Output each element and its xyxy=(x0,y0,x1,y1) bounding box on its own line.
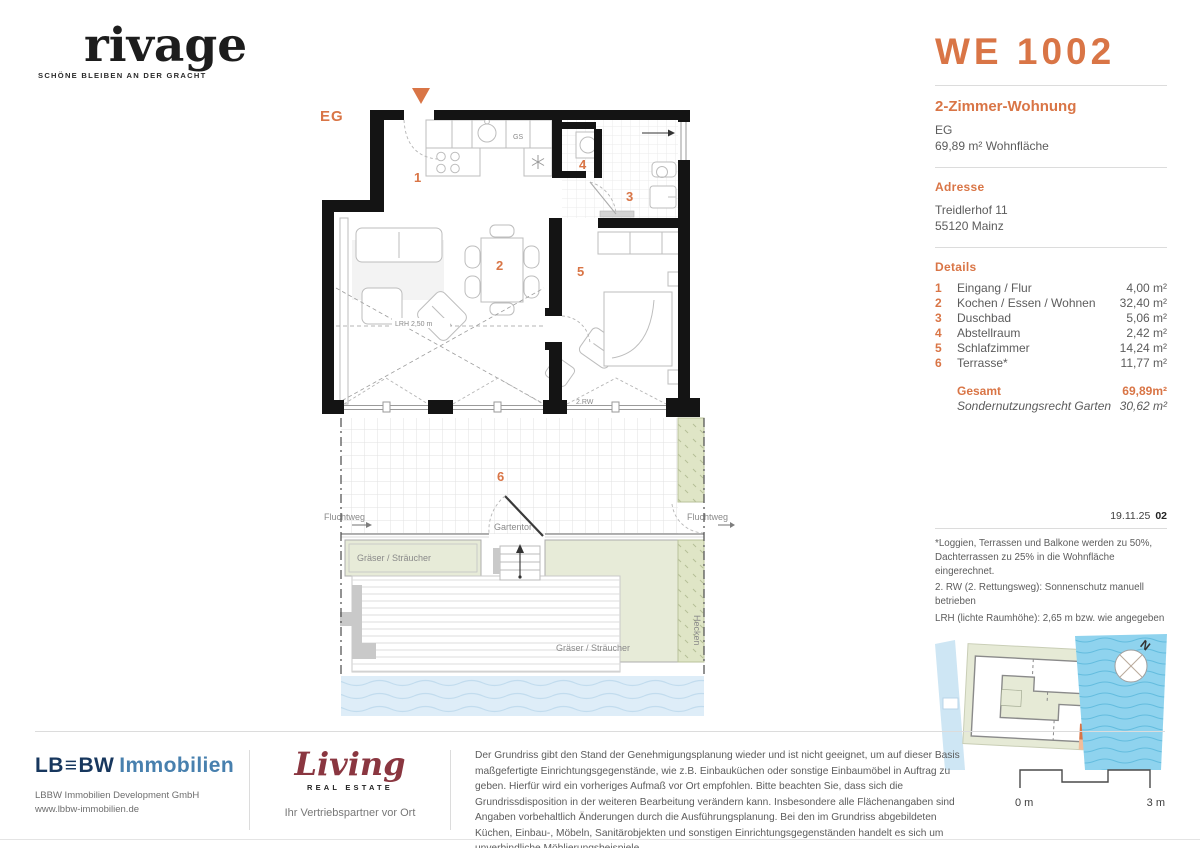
revision: 02 xyxy=(1155,510,1167,522)
row-name: Duschbad xyxy=(957,312,1126,326)
shrubs-right-label: Gräser / Sträucher xyxy=(556,643,630,653)
wardrobe xyxy=(598,232,684,254)
footnote: LRH (lichte Raumhöhe): 2,65 m bzw. wie a… xyxy=(935,612,1167,626)
second-escape-label: 2.RW xyxy=(576,399,594,406)
lbbw-website[interactable]: www.lbbw-immobilien.de xyxy=(35,803,225,817)
address-line2: 55120 Mainz xyxy=(935,218,1167,235)
living-tagline: Ihr Vertriebspartner vor Ort xyxy=(274,807,426,819)
living-subtitle: REAL ESTATE xyxy=(274,783,426,792)
divider xyxy=(935,247,1167,248)
footer-divider xyxy=(450,750,451,830)
unit-floor: EG xyxy=(935,122,1167,139)
row-area: 14,24 m² xyxy=(1120,342,1167,356)
row-name: Eingang / Flur xyxy=(957,282,1126,296)
bed xyxy=(604,292,672,366)
lrh-label: LRH 2,50 m xyxy=(395,321,433,328)
row-name: Kochen / Essen / Wohnen xyxy=(957,297,1120,311)
table-row: 5 Schlafzimmer 14,24 m² xyxy=(935,342,1167,356)
disclaimer-text: Der Grundriss gibt den Stand der Genehmi… xyxy=(475,748,973,848)
row-num: 6 xyxy=(935,357,957,371)
plan-date: 19.11.2502 xyxy=(935,510,1167,522)
row-area: 5,06 m² xyxy=(1126,312,1167,326)
divider xyxy=(935,85,1167,86)
lbbw-bw: BW xyxy=(78,754,114,777)
row-num: 1 xyxy=(935,282,957,296)
details-heading: Details xyxy=(935,260,1167,274)
total-label: Gesamt xyxy=(957,385,1122,399)
footnote: 2. RW (2. Rettungsweg): Sonnenschutz man… xyxy=(935,581,1167,609)
garden-gate-label: Gartentor xyxy=(494,522,532,532)
row-area: 4,00 m² xyxy=(1126,282,1167,296)
special-label: Sondernutzungsrecht Garten xyxy=(957,400,1120,414)
room-number-1: 1 xyxy=(414,170,421,185)
table-row: 2 Kochen / Essen / Wohnen 32,40 m² xyxy=(935,297,1167,311)
special-value: 30,62 m² xyxy=(1120,400,1167,414)
footer-divider xyxy=(249,750,250,830)
table-row: 4 Abstellraum 2,42 m² xyxy=(935,327,1167,341)
lbbw-lb: LB xyxy=(35,754,64,777)
room-number-2: 2 xyxy=(496,258,503,273)
escape-route-right-label: Fluchtweg xyxy=(687,512,728,522)
lbbw-logo: LB≡BWImmobilien xyxy=(35,754,225,778)
total-row: Gesamt 69,89m² xyxy=(935,385,1167,399)
scale-start: 0 m xyxy=(1015,797,1033,809)
scale-bar: 0 m 3 m xyxy=(1015,748,1165,809)
room-number-4: 4 xyxy=(579,157,587,172)
page-bottom-rule xyxy=(0,839,1200,840)
special-use-row: Sondernutzungsrecht Garten 30,62 m² xyxy=(935,400,1167,414)
hedge-label: Hecken xyxy=(692,615,702,646)
date: 19.11.25 xyxy=(1110,510,1150,522)
table-row: 6 Terrasse* 11,77 m² xyxy=(935,357,1167,371)
lbbw-block: LB≡BWImmobilien LBBW Immobilien Developm… xyxy=(35,748,225,818)
lbbw-immobilien: Immobilien xyxy=(119,754,234,777)
row-name: Terrasse* xyxy=(957,357,1121,371)
jetty xyxy=(943,698,958,709)
lbbw-company: LBBW Immobilien Development GmbH xyxy=(35,789,225,803)
table-row: 1 Eingang / Flur 4,00 m² xyxy=(935,282,1167,296)
row-area: 11,77 m² xyxy=(1121,357,1167,371)
divider xyxy=(935,528,1167,529)
terrace-and-garden xyxy=(340,418,704,716)
unit-area: 69,89 m² Wohnfläche xyxy=(935,138,1167,155)
row-area: 2,42 m² xyxy=(1126,327,1167,341)
kitchen-sink-icon xyxy=(478,124,496,142)
escape-route-left-label: Fluchtweg xyxy=(324,512,365,522)
footnote: *Loggien, Terrassen und Balkone werden z… xyxy=(935,537,1167,579)
row-num: 2 xyxy=(935,297,957,311)
footnotes: *Loggien, Terrassen und Balkone werden z… xyxy=(935,537,1167,626)
water-band xyxy=(341,676,704,716)
row-area: 32,40 m² xyxy=(1120,297,1167,311)
row-num: 3 xyxy=(935,312,957,326)
row-name: Schlafzimmer xyxy=(957,342,1120,356)
room-number-5: 5 xyxy=(577,264,584,279)
brand-tagline: SCHÖNE BLEIBEN AN DER GRACHT xyxy=(38,71,206,80)
dishwasher-label: GS xyxy=(513,134,523,141)
shrubs-left-label: Gräser / Sträucher xyxy=(357,553,431,563)
table-row: 3 Duschbad 5,06 m² xyxy=(935,312,1167,326)
row-num: 4 xyxy=(935,327,957,341)
details-table: 1 Eingang / Flur 4,00 m² 2 Kochen / Esse… xyxy=(935,282,1167,414)
living-block: Living REAL ESTATE Ihr Vertriebspartner … xyxy=(274,748,426,819)
plan-floor-label: EG xyxy=(320,108,344,125)
unit-type: 2-Zimmer-Wohnung xyxy=(935,98,1167,115)
lbbw-bars-icon: ≡ xyxy=(65,754,78,777)
floor-plan: LRH 2,50 m xyxy=(315,80,735,725)
address-heading: Adresse xyxy=(935,180,1167,194)
info-panel: WE 1002 2-Zimmer-Wohnung EG 69,89 m² Woh… xyxy=(935,32,1167,770)
footer: LB≡BWImmobilien LBBW Immobilien Developm… xyxy=(35,731,1165,848)
garden-stairs xyxy=(493,544,540,580)
address-line1: Treidlerhof 11 xyxy=(935,202,1167,219)
room-number-3: 3 xyxy=(626,189,633,204)
floorplan-page: rivage SCHÖNE BLEIBEN AN DER GRACHT xyxy=(0,0,1200,848)
row-num: 5 xyxy=(935,342,957,356)
scale-end: 3 m xyxy=(1147,797,1165,809)
entrance-arrow-icon xyxy=(412,88,430,104)
row-name: Abstellraum xyxy=(957,327,1126,341)
divider xyxy=(935,167,1167,168)
living-logo: Living xyxy=(274,748,426,780)
scale-bar-icon xyxy=(1015,764,1155,790)
total-value: 69,89m² xyxy=(1122,385,1167,399)
unit-id: WE 1002 xyxy=(935,32,1167,73)
room-number-6: 6 xyxy=(497,469,504,484)
toilet xyxy=(652,162,676,177)
brand-logo: rivage xyxy=(84,22,247,69)
